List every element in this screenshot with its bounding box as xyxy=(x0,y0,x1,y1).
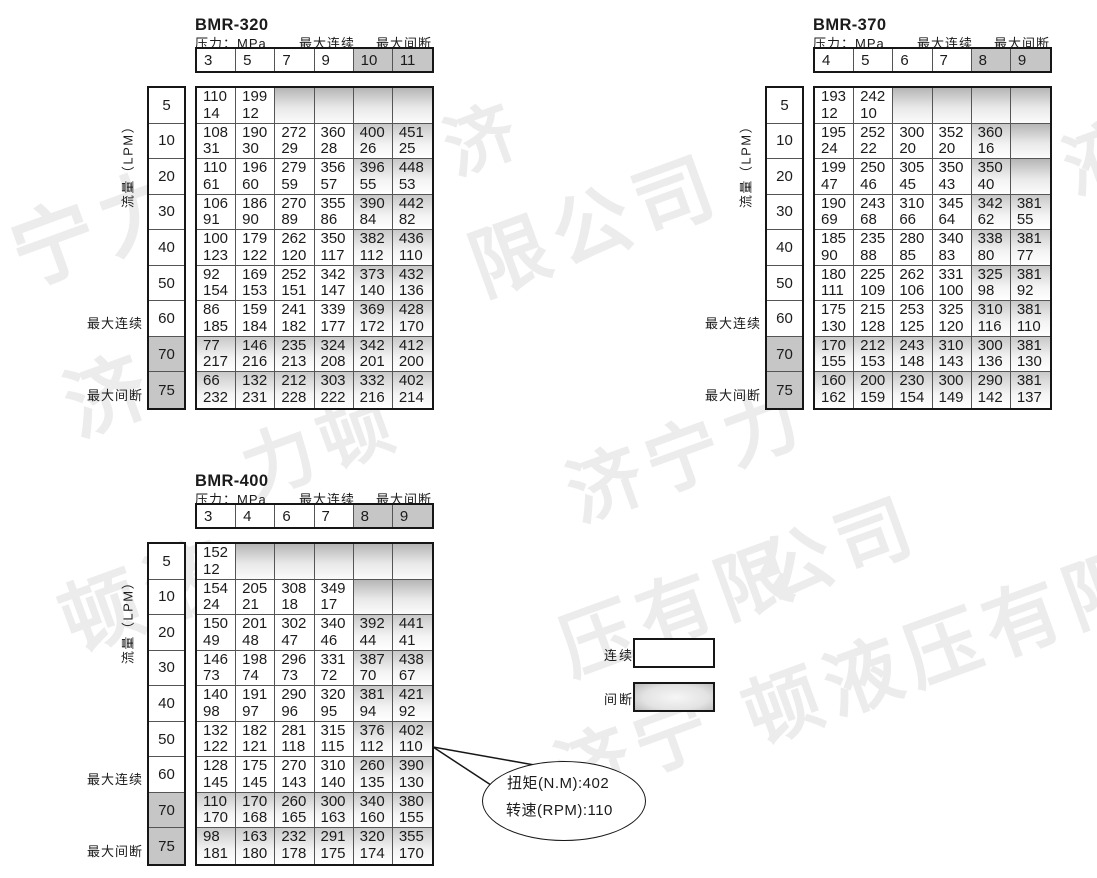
speed-value: 112 xyxy=(360,248,392,265)
speed-value: 143 xyxy=(281,775,313,792)
torque-value: 260 xyxy=(281,794,313,811)
speed-value: 136 xyxy=(399,283,432,300)
torque-speed-cell: 24210 xyxy=(854,88,893,124)
torque-value: 242 xyxy=(860,89,892,106)
torque-value: 310 xyxy=(321,758,353,775)
speed-value: 14 xyxy=(203,106,235,123)
flow-row-label: 70 xyxy=(149,793,184,829)
empty-cell xyxy=(933,88,972,124)
pressure-header-cell: 10 xyxy=(354,49,393,71)
torque-speed-cell: 34564 xyxy=(933,195,972,231)
torque-speed-cell: 25222 xyxy=(854,124,893,160)
speed-value: 163 xyxy=(321,810,353,827)
empty-cell xyxy=(236,544,275,580)
speed-value: 48 xyxy=(242,633,274,650)
torque-speed-cell: 34917 xyxy=(315,580,354,616)
torque-value: 360 xyxy=(978,125,1010,142)
speed-value: 88 xyxy=(860,248,892,265)
torque-speed-cell: 39244 xyxy=(354,615,393,651)
torque-value: 381 xyxy=(1017,231,1050,248)
torque-speed-cell: 33880 xyxy=(972,230,1011,266)
speed-value: 86 xyxy=(321,212,353,229)
speed-value: 140 xyxy=(321,775,353,792)
torque-speed-cell: 27089 xyxy=(275,195,314,231)
speed-value: 116 xyxy=(978,319,1010,336)
torque-speed-cell: 42192 xyxy=(393,686,432,722)
speed-value: 214 xyxy=(399,390,432,407)
torque-value: 338 xyxy=(978,231,1010,248)
speed-value: 145 xyxy=(203,775,235,792)
torque-speed-cell: 376112 xyxy=(354,722,393,758)
torque-value: 373 xyxy=(360,267,392,284)
torque-speed-cell: 170155 xyxy=(815,337,854,373)
speed-value: 178 xyxy=(281,846,313,863)
torque-value: 270 xyxy=(281,758,313,775)
torque-value: 205 xyxy=(242,581,274,598)
torque-value: 86 xyxy=(203,302,235,319)
torque-speed-cell: 432136 xyxy=(393,266,432,302)
torque-value: 332 xyxy=(360,373,392,390)
torque-value: 412 xyxy=(399,338,432,355)
torque-value: 350 xyxy=(978,160,1010,177)
speed-value: 201 xyxy=(360,354,392,371)
speed-value: 55 xyxy=(1017,212,1050,229)
speed-value: 24 xyxy=(203,597,235,614)
speed-value: 73 xyxy=(281,668,313,685)
flow-label-column: 51020304050607075 xyxy=(765,86,804,410)
torque-speed-cell: 381110 xyxy=(1011,301,1050,337)
torque-speed-cell: 132231 xyxy=(236,372,275,408)
torque-speed-cell: 15424 xyxy=(197,580,236,616)
speed-value: 111 xyxy=(821,283,853,300)
torque-value: 438 xyxy=(399,652,432,669)
flow-axis-label: 流量（LPM） xyxy=(118,550,137,690)
torque-speed-cell: 110170 xyxy=(197,793,236,829)
torque-value: 345 xyxy=(939,196,971,213)
torque-value: 451 xyxy=(399,125,432,142)
flow-row-label: 40 xyxy=(767,230,802,266)
torque-speed-cell: 290142 xyxy=(972,372,1011,408)
motor-table: BMR-370压力：MPa最大连续最大间断4567895102030405060… xyxy=(757,14,1059,414)
torque-speed-cell: 200159 xyxy=(854,372,893,408)
torque-speed-cell: 369172 xyxy=(354,301,393,337)
torque-speed-cell: 15049 xyxy=(197,615,236,651)
empty-cell xyxy=(354,88,393,124)
speed-value: 136 xyxy=(978,354,1010,371)
torque-speed-cell: 19069 xyxy=(815,195,854,231)
pressure-header-cell: 7 xyxy=(275,49,314,71)
torque-value: 200 xyxy=(860,373,892,390)
torque-speed-cell: 428170 xyxy=(393,301,432,337)
torque-value: 250 xyxy=(860,160,892,177)
max-continuous-row-label: 最大连续 xyxy=(49,769,143,788)
speed-value: 84 xyxy=(360,212,392,229)
speed-value: 180 xyxy=(242,846,274,863)
torque-speed-grid: 1101419912108311903027229360284002645125… xyxy=(195,86,434,410)
torque-value: 108 xyxy=(203,125,235,142)
torque-speed-cell: 402110 xyxy=(393,722,432,758)
torque-speed-cell: 30545 xyxy=(893,159,932,195)
torque-speed-cell: 36016 xyxy=(972,124,1011,160)
torque-value: 270 xyxy=(281,196,313,213)
torque-speed-cell: 19912 xyxy=(236,88,275,124)
speed-value: 53 xyxy=(399,177,432,194)
torque-speed-cell: 243148 xyxy=(893,337,932,373)
max-intermittent-row-label: 最大间断 xyxy=(49,385,143,404)
torque-value: 262 xyxy=(899,267,931,284)
torque-value: 305 xyxy=(899,160,931,177)
torque-speed-cell: 163180 xyxy=(236,828,275,864)
torque-speed-cell: 303222 xyxy=(315,372,354,408)
torque-value: 199 xyxy=(242,89,274,106)
torque-speed-grid: 1931224210195242522230020352203601619947… xyxy=(813,86,1052,410)
torque-value: 331 xyxy=(321,652,353,669)
torque-value: 310 xyxy=(939,338,971,355)
torque-value: 350 xyxy=(321,231,353,248)
pressure-header-cell: 6 xyxy=(893,49,932,71)
torque-value: 146 xyxy=(203,652,235,669)
torque-speed-cell: 44282 xyxy=(393,195,432,231)
speed-value: 153 xyxy=(242,283,274,300)
torque-value: 442 xyxy=(399,196,432,213)
speed-value: 16 xyxy=(978,141,1010,158)
torque-value: 340 xyxy=(360,794,392,811)
empty-cell xyxy=(1011,159,1050,195)
speed-value: 57 xyxy=(321,177,353,194)
torque-value: 169 xyxy=(242,267,274,284)
torque-speed-cell: 38192 xyxy=(1011,266,1050,302)
speed-value: 46 xyxy=(860,177,892,194)
flow-row-label: 75 xyxy=(767,372,802,408)
torque-speed-cell: 159184 xyxy=(236,301,275,337)
torque-speed-cell: 132122 xyxy=(197,722,236,758)
torque-speed-cell: 180111 xyxy=(815,266,854,302)
speed-value: 30 xyxy=(242,141,274,158)
torque-speed-cell: 19874 xyxy=(236,651,275,687)
speed-value: 170 xyxy=(203,810,235,827)
torque-speed-cell: 215128 xyxy=(854,301,893,337)
torque-value: 340 xyxy=(321,616,353,633)
speed-value: 12 xyxy=(203,562,235,579)
speed-value: 24 xyxy=(821,141,853,158)
torque-value: 260 xyxy=(360,758,392,775)
torque-value: 198 xyxy=(242,652,274,669)
torque-speed-cell: 32095 xyxy=(315,686,354,722)
torque-value: 66 xyxy=(203,373,235,390)
speed-value: 177 xyxy=(321,319,353,336)
torque-speed-cell: 19312 xyxy=(815,88,854,124)
flow-row-label: 75 xyxy=(149,828,184,864)
torque-value: 380 xyxy=(399,794,432,811)
torque-speed-cell: 36028 xyxy=(315,124,354,160)
speed-value: 120 xyxy=(939,319,971,336)
torque-value: 315 xyxy=(321,723,353,740)
torque-speed-cell: 212228 xyxy=(275,372,314,408)
speed-value: 28 xyxy=(321,141,353,158)
speed-value: 228 xyxy=(281,390,313,407)
torque-speed-cell: 300163 xyxy=(315,793,354,829)
torque-speed-cell: 29096 xyxy=(275,686,314,722)
torque-value: 290 xyxy=(978,373,1010,390)
torque-value: 146 xyxy=(242,338,274,355)
empty-cell xyxy=(315,88,354,124)
empty-cell xyxy=(893,88,932,124)
torque-value: 170 xyxy=(821,338,853,355)
empty-cell xyxy=(315,544,354,580)
torque-value: 175 xyxy=(242,758,274,775)
speed-value: 43 xyxy=(939,177,971,194)
torque-value: 381 xyxy=(360,687,392,704)
torque-speed-cell: 19524 xyxy=(815,124,854,160)
pressure-header-cell: 3 xyxy=(197,49,236,71)
flow-row-label: 5 xyxy=(149,544,184,580)
speed-value: 77 xyxy=(1017,248,1050,265)
torque-speed-cell: 412200 xyxy=(393,337,432,373)
torque-value: 110 xyxy=(203,794,235,811)
torque-speed-cell: 27959 xyxy=(275,159,314,195)
speed-value: 213 xyxy=(281,354,313,371)
speed-value: 47 xyxy=(821,177,853,194)
speed-value: 185 xyxy=(203,319,235,336)
torque-speed-cell: 34083 xyxy=(933,230,972,266)
pressure-header-cell: 8 xyxy=(972,49,1011,71)
speed-value: 208 xyxy=(321,354,353,371)
torque-speed-cell: 175145 xyxy=(236,757,275,793)
speed-value: 151 xyxy=(281,283,313,300)
torque-value: 212 xyxy=(860,338,892,355)
torque-speed-cell: 310140 xyxy=(315,757,354,793)
speed-value: 31 xyxy=(203,141,235,158)
torque-speed-cell: 15212 xyxy=(197,544,236,580)
torque-speed-cell: 98181 xyxy=(197,828,236,864)
torque-value: 342 xyxy=(321,267,353,284)
torque-speed-cell: 128145 xyxy=(197,757,236,793)
speed-value: 181 xyxy=(203,846,235,863)
speed-value: 59 xyxy=(281,177,313,194)
pressure-header-cell: 11 xyxy=(393,49,432,71)
torque-value: 382 xyxy=(360,231,392,248)
torque-value: 325 xyxy=(939,302,971,319)
torque-speed-cell: 380155 xyxy=(393,793,432,829)
speed-value: 61 xyxy=(203,177,235,194)
speed-value: 74 xyxy=(242,668,274,685)
legend-continuous-swatch xyxy=(633,638,715,668)
speed-value: 118 xyxy=(281,739,313,756)
speed-value: 91 xyxy=(203,212,235,229)
flow-row-label: 30 xyxy=(149,195,184,231)
torque-value: 310 xyxy=(978,302,1010,319)
torque-speed-cell: 39084 xyxy=(354,195,393,231)
torque-value: 132 xyxy=(203,723,235,740)
pressure-header-cell: 5 xyxy=(854,49,893,71)
torque-speed-cell: 19197 xyxy=(236,686,275,722)
torque-value: 441 xyxy=(399,616,432,633)
torque-value: 241 xyxy=(281,302,313,319)
speed-value: 80 xyxy=(978,248,1010,265)
torque-speed-cell: 100123 xyxy=(197,230,236,266)
max-continuous-row-label: 最大连续 xyxy=(49,313,143,332)
torque-value: 342 xyxy=(978,196,1010,213)
flow-axis-label: 流量（LPM） xyxy=(736,94,755,234)
torque-speed-cell: 342201 xyxy=(354,337,393,373)
torque-speed-cell: 24368 xyxy=(854,195,893,231)
flow-row-label: 20 xyxy=(149,159,184,195)
torque-speed-cell: 35040 xyxy=(972,159,1011,195)
torque-value: 182 xyxy=(242,723,274,740)
torque-speed-cell: 332216 xyxy=(354,372,393,408)
flow-row-label: 30 xyxy=(149,651,184,687)
torque-speed-cell: 34262 xyxy=(972,195,1011,231)
speed-value: 100 xyxy=(939,283,971,300)
torque-value: 235 xyxy=(860,231,892,248)
torque-value: 243 xyxy=(899,338,931,355)
torque-speed-cell: 373140 xyxy=(354,266,393,302)
torque-speed-cell: 253125 xyxy=(893,301,932,337)
torque-speed-cell: 38155 xyxy=(1011,195,1050,231)
motor-table: BMR-320压力：MPa最大连续最大间断3579101151020304050… xyxy=(139,14,441,414)
speed-value: 83 xyxy=(939,248,971,265)
flow-axis-label: 流量（LPM） xyxy=(118,94,137,234)
torque-value: 381 xyxy=(1017,338,1050,355)
flow-row-label: 20 xyxy=(767,159,802,195)
speed-value: 69 xyxy=(821,212,853,229)
torque-speed-cell: 30818 xyxy=(275,580,314,616)
speed-value: 130 xyxy=(1017,354,1050,371)
torque-value: 310 xyxy=(899,196,931,213)
torque-value: 448 xyxy=(399,160,432,177)
torque-value: 170 xyxy=(242,794,274,811)
speed-value: 182 xyxy=(281,319,313,336)
legend-continuous-label: 连续 xyxy=(604,645,634,664)
torque-value: 381 xyxy=(1017,302,1050,319)
torque-value: 302 xyxy=(281,616,313,633)
torque-speed-cell: 300136 xyxy=(972,337,1011,373)
speed-value: 12 xyxy=(242,106,274,123)
speed-value: 95 xyxy=(321,704,353,721)
torque-speed-cell: 262120 xyxy=(275,230,314,266)
torque-speed-cell: 146216 xyxy=(236,337,275,373)
torque-value: 352 xyxy=(939,125,971,142)
empty-cell xyxy=(393,88,432,124)
speed-value: 106 xyxy=(899,283,931,300)
torque-value: 300 xyxy=(899,125,931,142)
speed-value: 112 xyxy=(360,739,392,756)
torque-speed-cell: 262106 xyxy=(893,266,932,302)
torque-value: 331 xyxy=(939,267,971,284)
torque-speed-cell: 35586 xyxy=(315,195,354,231)
torque-value: 390 xyxy=(360,196,392,213)
speed-value: 44 xyxy=(360,633,392,650)
torque-speed-cell: 381137 xyxy=(1011,372,1050,408)
torque-value: 185 xyxy=(821,231,853,248)
torque-value: 280 xyxy=(899,231,931,248)
speed-value: 154 xyxy=(899,390,931,407)
flow-row-label: 75 xyxy=(149,372,184,408)
torque-speed-cell: 355170 xyxy=(393,828,432,864)
torque-value: 190 xyxy=(242,125,274,142)
speed-value: 222 xyxy=(321,390,353,407)
speed-value: 184 xyxy=(242,319,274,336)
speed-value: 147 xyxy=(321,283,353,300)
torque-value: 191 xyxy=(242,687,274,704)
torque-value: 402 xyxy=(399,373,432,390)
torque-value: 376 xyxy=(360,723,392,740)
flow-row-label: 20 xyxy=(149,615,184,651)
speed-value: 45 xyxy=(899,177,931,194)
datasheet-page: 宁力济限公司济液济力顿济宁力顿液压有限公司济宁顿液压有限 BMR-320压力：M… xyxy=(0,0,1097,878)
torque-speed-cell: 340160 xyxy=(354,793,393,829)
speed-value: 122 xyxy=(203,739,235,756)
speed-value: 137 xyxy=(1017,390,1050,407)
torque-speed-cell: 18690 xyxy=(236,195,275,231)
pressure-header-row: 346789 xyxy=(195,503,434,529)
speed-value: 148 xyxy=(899,354,931,371)
torque-speed-cell: 11061 xyxy=(197,159,236,195)
speed-value: 165 xyxy=(281,810,313,827)
speed-value: 22 xyxy=(860,141,892,158)
torque-value: 296 xyxy=(281,652,313,669)
torque-speed-cell: 310143 xyxy=(933,337,972,373)
pressure-header-row: 456789 xyxy=(813,47,1052,73)
torque-speed-cell: 436110 xyxy=(393,230,432,266)
speed-value: 232 xyxy=(203,390,235,407)
torque-value: 290 xyxy=(281,687,313,704)
torque-value: 300 xyxy=(978,338,1010,355)
torque-speed-cell: 33172 xyxy=(315,651,354,687)
speed-value: 175 xyxy=(321,846,353,863)
speed-value: 62 xyxy=(978,212,1010,229)
speed-value: 70 xyxy=(360,668,392,685)
pressure-header-cell: 9 xyxy=(1011,49,1050,71)
max-intermittent-row-label: 最大间断 xyxy=(667,385,761,404)
torque-speed-cell: 35220 xyxy=(933,124,972,160)
torque-value: 152 xyxy=(203,545,235,562)
torque-speed-cell: 34046 xyxy=(315,615,354,651)
callout-speed-text: 转速(RPM):110 xyxy=(506,799,613,820)
speed-value: 115 xyxy=(321,739,353,756)
torque-speed-cell: 241182 xyxy=(275,301,314,337)
speed-value: 109 xyxy=(860,283,892,300)
speed-value: 142 xyxy=(978,390,1010,407)
speed-value: 40 xyxy=(978,177,1010,194)
torque-value: 154 xyxy=(203,581,235,598)
speed-value: 128 xyxy=(860,319,892,336)
speed-value: 60 xyxy=(242,177,274,194)
torque-speed-cell: 300149 xyxy=(933,372,972,408)
speed-value: 135 xyxy=(360,775,392,792)
torque-value: 106 xyxy=(203,196,235,213)
flow-row-label: 40 xyxy=(149,686,184,722)
torque-speed-cell: 310116 xyxy=(972,301,1011,337)
torque-speed-cell: 14673 xyxy=(197,651,236,687)
speed-value: 145 xyxy=(242,775,274,792)
speed-value: 159 xyxy=(860,390,892,407)
torque-value: 396 xyxy=(360,160,392,177)
speed-value: 216 xyxy=(360,390,392,407)
torque-speed-cell: 281118 xyxy=(275,722,314,758)
torque-speed-cell: 40026 xyxy=(354,124,393,160)
speed-value: 154 xyxy=(203,283,235,300)
torque-speed-cell: 235213 xyxy=(275,337,314,373)
speed-value: 130 xyxy=(399,775,432,792)
torque-value: 291 xyxy=(321,829,353,846)
torque-speed-cell: 230154 xyxy=(893,372,932,408)
torque-speed-cell: 44141 xyxy=(393,615,432,651)
speed-value: 94 xyxy=(360,704,392,721)
pressure-header-cell: 9 xyxy=(393,505,432,527)
speed-value: 92 xyxy=(1017,283,1050,300)
speed-value: 26 xyxy=(360,141,392,158)
